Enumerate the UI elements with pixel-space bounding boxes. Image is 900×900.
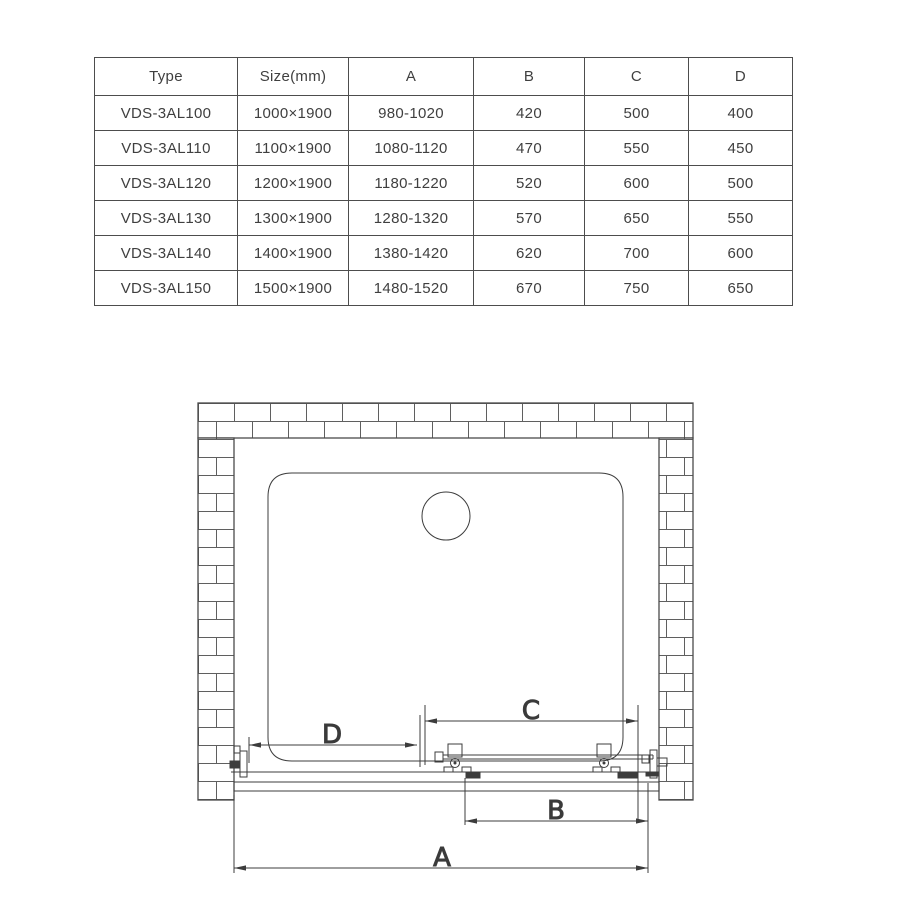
cell-c: 500 bbox=[585, 96, 689, 131]
cell-c: 600 bbox=[585, 166, 689, 201]
cell-a: 1380-1420 bbox=[349, 236, 474, 271]
table-row: VDS-3AL100 1000×1900 980-1020 420 500 40… bbox=[95, 96, 793, 131]
table-row: VDS-3AL130 1300×1900 1280-1320 570 650 5… bbox=[95, 201, 793, 236]
cell-b: 520 bbox=[474, 166, 585, 201]
cell-size: 1100×1900 bbox=[238, 131, 349, 166]
cell-size: 1000×1900 bbox=[238, 96, 349, 131]
col-header-type: Type bbox=[95, 58, 238, 96]
cell-d: 450 bbox=[689, 131, 793, 166]
cell-b: 570 bbox=[474, 201, 585, 236]
cell-d: 600 bbox=[689, 236, 793, 271]
dimension-a: A bbox=[234, 783, 648, 873]
col-header-a: A bbox=[349, 58, 474, 96]
col-header-d: D bbox=[689, 58, 793, 96]
brick-wall bbox=[198, 403, 693, 800]
cell-d: 550 bbox=[689, 201, 793, 236]
col-header-b: B bbox=[474, 58, 585, 96]
cell-b: 670 bbox=[474, 271, 585, 306]
dimension-b: B bbox=[465, 778, 648, 826]
cell-type: VDS-3AL110 bbox=[95, 131, 238, 166]
cell-size: 1400×1900 bbox=[238, 236, 349, 271]
installation-diagram: D C B bbox=[190, 395, 710, 890]
cell-a: 1480-1520 bbox=[349, 271, 474, 306]
cell-type: VDS-3AL150 bbox=[95, 271, 238, 306]
table-row: VDS-3AL110 1100×1900 1080-1120 470 550 4… bbox=[95, 131, 793, 166]
cell-type: VDS-3AL120 bbox=[95, 166, 238, 201]
sliding-door-rail bbox=[443, 755, 653, 759]
cell-c: 700 bbox=[585, 236, 689, 271]
cell-c: 650 bbox=[585, 201, 689, 236]
dimension-d: D bbox=[249, 715, 420, 767]
cell-d: 500 bbox=[689, 166, 793, 201]
cell-type: VDS-3AL100 bbox=[95, 96, 238, 131]
cell-size: 1300×1900 bbox=[238, 201, 349, 236]
cell-a: 980-1020 bbox=[349, 96, 474, 131]
cell-type: VDS-3AL140 bbox=[95, 236, 238, 271]
brick-wall-right bbox=[659, 438, 693, 800]
cell-c: 550 bbox=[585, 131, 689, 166]
cell-size: 1500×1900 bbox=[238, 271, 349, 306]
cell-a: 1080-1120 bbox=[349, 131, 474, 166]
drain-circle bbox=[422, 492, 470, 540]
dimension-c-label: C bbox=[522, 696, 540, 726]
cell-a: 1280-1320 bbox=[349, 201, 474, 236]
cell-size: 1200×1900 bbox=[238, 166, 349, 201]
table-header-row: Type Size(mm) A B C D bbox=[95, 58, 793, 96]
cell-b: 420 bbox=[474, 96, 585, 131]
col-header-c: C bbox=[585, 58, 689, 96]
cell-b: 470 bbox=[474, 131, 585, 166]
table-row: VDS-3AL150 1500×1900 1480-1520 670 750 6… bbox=[95, 271, 793, 306]
shower-tray bbox=[268, 473, 623, 761]
dimension-a-label: A bbox=[433, 843, 451, 873]
dimension-d-label: D bbox=[322, 720, 342, 750]
brick-wall-top bbox=[198, 403, 693, 438]
brick-wall-left bbox=[198, 438, 234, 800]
cell-d: 650 bbox=[689, 271, 793, 306]
roller-right bbox=[593, 744, 638, 778]
cell-d: 400 bbox=[689, 96, 793, 131]
cell-type: VDS-3AL130 bbox=[95, 201, 238, 236]
page: Type Size(mm) A B C D VDS-3AL100 1000×19… bbox=[0, 0, 900, 900]
bottom-track bbox=[231, 772, 659, 791]
col-header-size: Size(mm) bbox=[238, 58, 349, 96]
table-row: VDS-3AL120 1200×1900 1180-1220 520 600 5… bbox=[95, 166, 793, 201]
cell-b: 620 bbox=[474, 236, 585, 271]
cell-c: 750 bbox=[585, 271, 689, 306]
spec-table: Type Size(mm) A B C D VDS-3AL100 1000×19… bbox=[94, 57, 793, 306]
cell-a: 1180-1220 bbox=[349, 166, 474, 201]
dimension-b-label: B bbox=[547, 796, 565, 826]
table-row: VDS-3AL140 1400×1900 1380-1420 620 700 6… bbox=[95, 236, 793, 271]
